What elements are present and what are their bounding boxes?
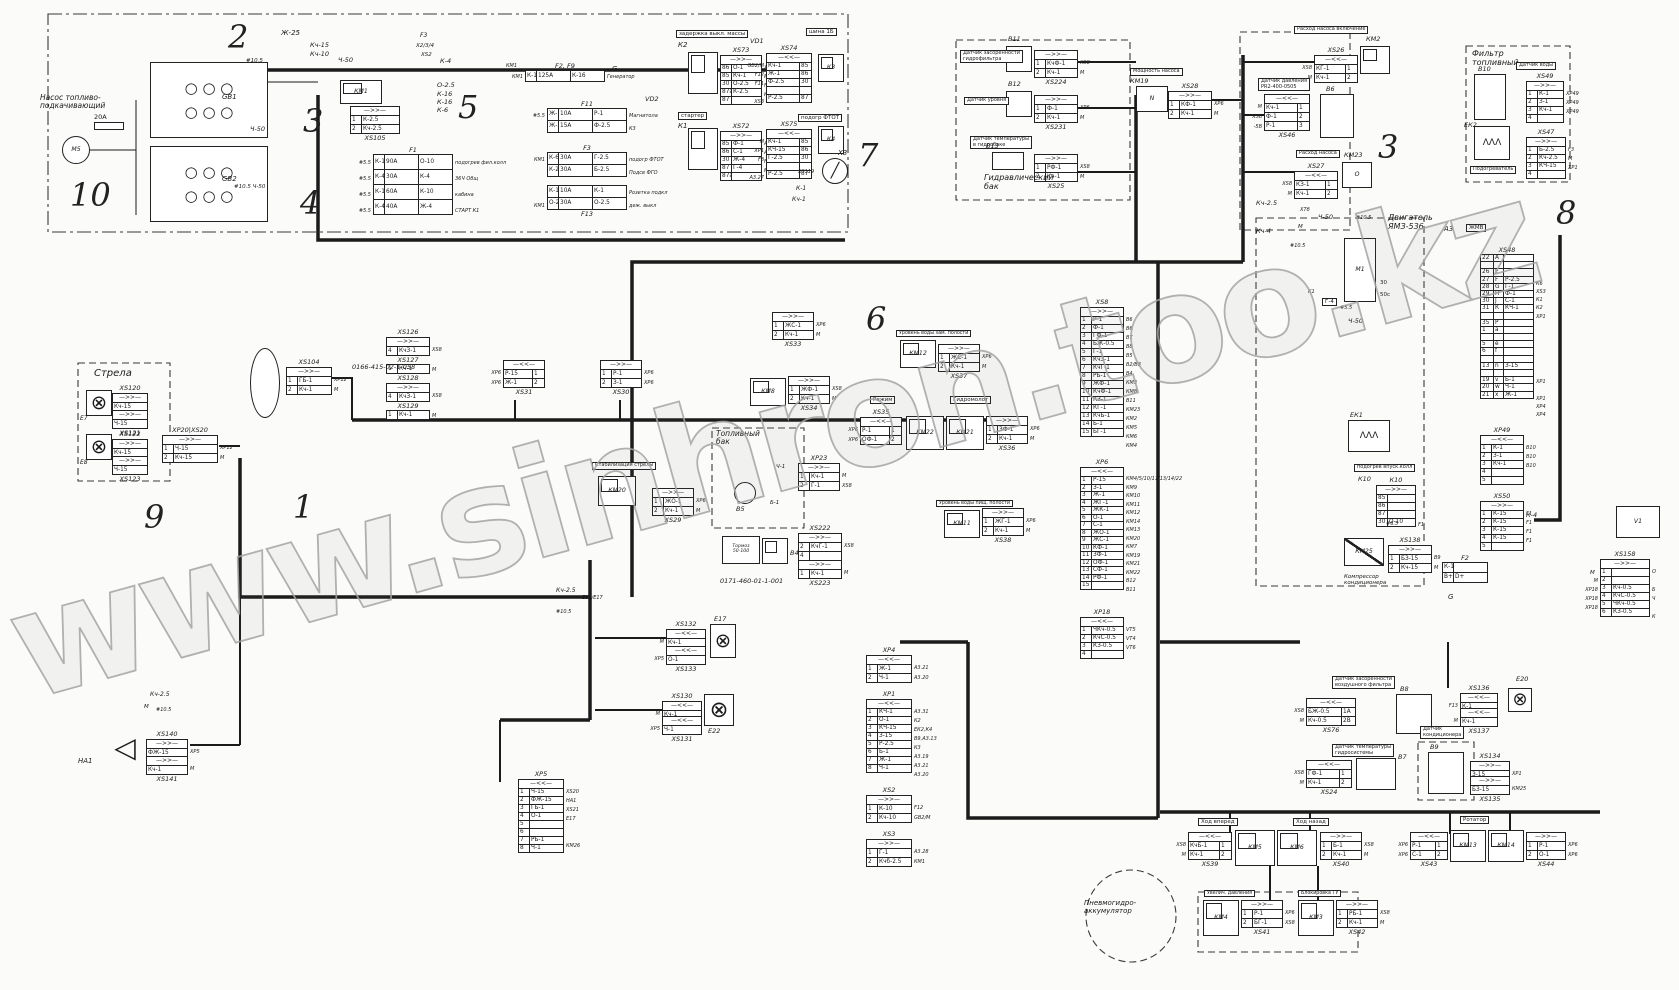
pin-cell: Б-1 — [1504, 377, 1533, 383]
wire-tag: XS21 — [566, 807, 579, 813]
pin-cell: 2 — [983, 527, 994, 535]
pin-cell: Кч-1 — [147, 766, 187, 774]
connector-XS128: XS128—>>—4КчЗ-1 — [386, 374, 430, 402]
pin-cell — [1494, 370, 1504, 376]
wire-tag: М — [982, 364, 986, 370]
pin-cell: КчФ-1 — [1046, 60, 1077, 68]
label: Стабилизация стрелы — [592, 462, 656, 470]
pin-cell: 1 — [1035, 164, 1046, 172]
pin-cell: 1 — [351, 116, 362, 124]
pin-cell: О-2.5 — [548, 198, 559, 209]
pin-cell: 12 — [1081, 405, 1092, 412]
connector-XS140: XS140—>>—ФЖ-15 — [146, 730, 188, 758]
pin-cell: 7 — [1081, 522, 1092, 529]
pin-row: 12ОФ-1 — [1080, 559, 1124, 568]
connector-XS231: —>>—1Ф-12Кч-1XS231 — [1034, 95, 1078, 132]
pin-cell: Кч-1 — [1046, 69, 1077, 77]
wire-tag: ХР6 — [1026, 518, 1036, 524]
wire-tag: КМ5 — [1126, 425, 1137, 431]
pin-row: 5 — [518, 820, 564, 829]
pin-cell: 8 — [1081, 530, 1092, 537]
pin-cell: З-1 — [1092, 485, 1123, 492]
sensor-b12 — [1006, 91, 1032, 117]
pin-row: 1Кч-1 — [798, 472, 840, 482]
pin-cell: 5 — [1081, 349, 1092, 356]
pin-cell: С-1 — [1504, 298, 1533, 304]
boom-lamp-e8: ⊗ — [86, 434, 112, 460]
pin-row: 1ЗФ-1 — [986, 425, 1028, 435]
callout-5: 5 — [458, 88, 478, 126]
wire-tag: М — [334, 387, 338, 393]
pin-row: 3КЧ-15 — [1526, 162, 1566, 171]
pin-cell: 1 — [1220, 842, 1231, 850]
wire-tag: F13 — [1449, 703, 1458, 709]
pin-cell: КЗ-0.5 — [1612, 609, 1649, 616]
pin-row: 5Г-1 — [1080, 348, 1124, 357]
pin-cell — [1612, 569, 1649, 576]
pin-cell: ГБ-1 — [298, 377, 331, 385]
wire-tag: В10 — [1526, 463, 1536, 469]
pin-cell: РБ-1 — [530, 837, 563, 844]
pin-row: 4К-15 — [1480, 534, 1524, 543]
wire-tag: ХР1 — [1512, 771, 1522, 777]
connector-name: XS35 — [860, 408, 902, 417]
pin-cell: Кч-1 — [1315, 74, 1346, 82]
wire-tag: Подсв ФГО — [629, 170, 658, 176]
pin-cell: 1 — [789, 386, 800, 394]
wire — [240, 458, 590, 597]
pin-row: К-110АК-1 — [547, 185, 627, 198]
pin-cell: 15А — [559, 121, 593, 132]
wire-tag: А3.27 — [749, 175, 764, 181]
connector-ХР5: ХР5—<<—1Ч-152ФЖ-153ГБ-14О-1567РБ-18Ч-1 — [518, 770, 564, 853]
wire-tag: #5.5 — [359, 192, 371, 198]
wire-tag: XS8 — [1380, 910, 1390, 916]
connector-name: XS128 — [386, 374, 430, 383]
label: GB1 — [222, 94, 237, 102]
label: К1 — [678, 123, 687, 131]
pin-cell: 2 — [1527, 851, 1538, 859]
label: Уровень воды пищ. полости — [936, 500, 1013, 507]
pin-row: 4 — [1526, 170, 1566, 179]
wire-tag: ХР6 — [1568, 842, 1578, 848]
pin-cell: 30 — [800, 79, 811, 86]
pin-cell: Ж-1 — [1092, 492, 1123, 499]
lamp-icon: ⊗ — [715, 631, 731, 651]
connector-name: XS46 — [1264, 131, 1310, 140]
pin-row: 1ЧКч-0.5 — [1080, 626, 1124, 635]
wire-tag: подогр ФТОТ — [629, 157, 664, 163]
pin-cell: Кч-2.5 — [1538, 155, 1565, 162]
pin-cell: 30 — [800, 155, 811, 162]
pin-row: 8Ч-1 — [866, 764, 912, 773]
wire-tag: В2/В3 — [1126, 362, 1141, 368]
lamp-e17: ⊗ — [710, 624, 736, 658]
pin-cell: Р-1 — [1411, 842, 1436, 850]
pin-row: 2Кч-1 — [938, 362, 980, 372]
pin-row: 8Ч-1 — [518, 844, 564, 853]
pin-cell: Г-4 — [732, 165, 761, 172]
connector-XS49: XS49—>>—1К-12З-13Кч-14 — [1526, 72, 1564, 123]
connector-XS40: —>>—1Б-12Кч-1XS40 — [1320, 832, 1362, 869]
pin-cell: Кч-1 — [1538, 107, 1563, 114]
connector-ХР18: ХР18—<<—1ЧКч-0.52КчС-0.53КЗ-0.54 — [1080, 608, 1124, 659]
connector-name: XS132 — [666, 620, 706, 629]
pin-row: К-1690АО-10 — [373, 154, 453, 170]
wire-tag: F12 — [755, 72, 764, 78]
label: Подогреватель — [1470, 166, 1516, 174]
sensor-b13 — [992, 152, 1024, 170]
km14: КМ14 — [1488, 830, 1524, 862]
connector-F3: F3К-630АГ-2.5К-2.530АБ-2.5 — [547, 144, 627, 177]
battery-cells: ○ ○ ○ ○ ○ ○ — [185, 160, 234, 208]
label: G — [612, 66, 617, 74]
valve-v1: V1 — [1616, 506, 1660, 538]
wire-tag: #5.5 — [359, 160, 371, 166]
callout-2: 2 — [228, 18, 248, 56]
wire-tag: В10 — [1526, 445, 1536, 451]
connector-XS122: XS122—>>—Кч-15 — [112, 430, 148, 458]
fuse-20a — [94, 122, 124, 130]
pin-row: Ф-12 — [1264, 112, 1310, 122]
pin-cell: 8 — [519, 845, 530, 852]
pin-cell: 87 — [800, 95, 811, 102]
component-label: КМ21 — [956, 430, 974, 437]
wire-tag: М — [1454, 718, 1458, 724]
pin-row: 4КчЗ-1 — [386, 346, 430, 356]
lamp-icon: ⊗ — [91, 437, 107, 457]
pin-row: 2КчС-0.5 — [1080, 634, 1124, 643]
pin-row: 2Кч-2.5 — [1526, 154, 1566, 163]
pin-cell: Б-1 — [878, 749, 911, 756]
pin-cell: Р-2.5 — [878, 741, 911, 748]
pin-row: 1БЗ-15 — [1388, 554, 1432, 564]
pin-cell: 2 — [1220, 851, 1231, 859]
pin-row: 15 — [1080, 581, 1124, 590]
component-label: КМ12 — [909, 351, 927, 358]
pin-cell: 7 — [1081, 365, 1092, 372]
pin-cell: 86 — [721, 65, 732, 72]
pin-cell: 2 — [939, 363, 950, 371]
label: В10 — [1478, 66, 1491, 73]
pin-row — [1480, 333, 1534, 341]
pin-cell: К — [1494, 305, 1504, 311]
km6: КМ6 — [1277, 830, 1317, 866]
pin-cell: БГ-1 — [1253, 919, 1282, 927]
pin-cell: 2 — [799, 482, 810, 490]
connector-name: XS123 — [112, 475, 148, 484]
label: КМ19 — [1130, 78, 1149, 85]
wire-tag: М — [1364, 852, 1368, 858]
pin-cell: О-1 — [530, 813, 563, 820]
pin-row: 3Кч-1 — [1480, 460, 1524, 469]
pin-cell: 1 — [1481, 511, 1492, 518]
wire-tag: ХР6 — [816, 322, 826, 328]
wire-tag: ХР6 — [848, 427, 858, 433]
connector-name: XS105 — [350, 134, 400, 143]
pin-cell: Г-2.5 — [593, 153, 626, 164]
pin-row: 5 — [1480, 542, 1524, 551]
pin-row: 87Г-4 — [720, 164, 762, 173]
fuel-pump-motor: М5 — [62, 136, 90, 164]
pin-cell: 8 — [1081, 373, 1092, 380]
connector-XS132: XS132—<<—Кч-1 — [666, 620, 706, 648]
pin-cell: КчБ-1 — [1189, 842, 1220, 850]
pin-cell: Кч-1 — [1265, 104, 1298, 112]
wire-tag: ХР6 — [644, 370, 654, 376]
pin-row: Р-13 — [1264, 121, 1310, 131]
pin-cell — [1494, 334, 1504, 340]
lamp-icon: ⊗ — [91, 393, 107, 413]
pin-cell: 35 — [1481, 320, 1494, 326]
connector-name: ХР4 — [866, 646, 912, 655]
pin-cell: 1 — [799, 570, 810, 578]
connector-XS24: —<<—ГФ-11Кч-12XS24 — [1306, 760, 1352, 797]
pin-cell: ЖС-1 — [1092, 537, 1123, 544]
wire-tag: К2 — [1536, 305, 1543, 311]
pin-cell: 85 — [800, 63, 811, 70]
connector-name: XS49 — [1526, 72, 1564, 81]
label: #10.5 — [1356, 216, 1371, 222]
pin-row: 30Ж-4 — [720, 156, 762, 165]
pin-cell: 30А — [559, 165, 593, 176]
pin-row: Ж-110АР-1 — [547, 108, 627, 121]
pin-row: 2Кчб-2.5 — [866, 857, 912, 867]
connector-XS31: —<<—Р-151Ж-12XS31 — [503, 360, 545, 397]
pin-cell: 15 — [1081, 582, 1092, 589]
km5: КМ5 — [1235, 830, 1275, 866]
connector-XS129: XS1291Кч-1 — [386, 402, 430, 420]
pin-cell: 3 — [1081, 643, 1092, 650]
wire-tag: ХР1 — [1568, 165, 1578, 171]
wire-tag: ХР6 — [1285, 910, 1295, 916]
pin-cell: 1 — [519, 789, 530, 796]
component-label: КМ20 — [608, 488, 626, 495]
pin-cell: КчЗ-1 — [398, 347, 429, 355]
wire-tag: М — [1214, 111, 1218, 117]
pin-row: 1ЖГ-1 — [982, 517, 1024, 527]
connector-name: XS44 — [1526, 860, 1566, 869]
pin-row: 4КчС-0.5 — [1600, 592, 1650, 601]
wire-tag: ХР1 — [1536, 314, 1546, 320]
pin-row — [1480, 261, 1534, 269]
pin-cell: К-10 — [878, 805, 911, 813]
connector-ХР20|ХS20: ХР20|ХS20—>>—1Ч-152Кч-15 — [162, 426, 218, 463]
pin-row: К-630АГ-2.5 — [547, 152, 627, 165]
pin-row: ОФ-12 — [860, 435, 902, 445]
component-label: КМ1 — [354, 89, 368, 96]
wire-tag: М — [696, 508, 700, 514]
label: Г-4 — [1322, 298, 1337, 306]
connector-F13: К-110АК-1О-2.530АО-2.5F13 — [547, 186, 627, 219]
callout-7: 7 — [858, 136, 878, 174]
wire-tag: В4 — [1126, 371, 1133, 377]
pin-row: 22А — [1480, 254, 1534, 262]
pin-cell: Г-1 — [1092, 349, 1123, 356]
pin-row: 1Кч-1 — [798, 569, 842, 579]
callout-10: 10 — [70, 176, 111, 214]
connector-XS27: XS27—<<—КЗ-11Кч-12 — [1294, 162, 1338, 199]
pin-cell: 1 — [799, 473, 810, 481]
pin-cell: 6 — [1601, 609, 1612, 616]
label: М — [1298, 224, 1303, 230]
wire-tag: XS8 — [1302, 65, 1312, 71]
pin-cell: ОФ-1 — [1092, 560, 1123, 567]
wire-tag: К — [1652, 614, 1656, 620]
pin-cell — [1092, 651, 1123, 658]
pin-cell: 87а — [721, 173, 732, 180]
pin-cell: К-16 — [571, 71, 604, 81]
component-label: Тормоз 50-100 — [732, 545, 749, 555]
pin-cell: 2 — [789, 395, 800, 403]
wire-tag: К2 — [914, 718, 921, 724]
heater-ek1: ΛΛΛ — [1348, 420, 1390, 452]
pin-cell: 1 — [1346, 65, 1357, 73]
pin-cell: 86 — [721, 149, 732, 156]
pin-cell: 90А — [385, 155, 419, 169]
pin-cell: 5 — [519, 821, 530, 828]
connector-F11: F11Ж-110АР-1Ж-2.515АФ-2.5 — [547, 100, 627, 133]
pin-cell — [1481, 370, 1494, 376]
pin-row: 1ЖС-1 — [772, 321, 814, 331]
pin-cell: Кч-1 — [810, 570, 841, 578]
pin-cell: 2 — [1242, 919, 1253, 927]
wire-tag: ХР1 — [754, 148, 764, 154]
wire-tag: М — [842, 473, 846, 479]
pin-cell: 1 — [1337, 910, 1348, 918]
wire-tag: М — [656, 711, 660, 717]
callout-9: 9 — [144, 498, 164, 536]
pin-cell: ЧКч-0.5 — [1612, 601, 1649, 608]
pin-cell — [1388, 503, 1415, 510]
pin-cell: Б-1 — [1092, 421, 1123, 428]
label: В7 — [1398, 754, 1407, 761]
pin-row: 2О-1 — [866, 716, 912, 725]
pin-cell: КЗ-1 — [1092, 397, 1123, 404]
pin-cell: 4 — [519, 813, 530, 820]
pin-cell — [1492, 543, 1523, 550]
connector-name: XS8 — [1080, 298, 1124, 307]
pin-cell: 3 — [1481, 527, 1492, 534]
label: Датчик уровня — [964, 97, 1009, 105]
pin-cell: Р — [1494, 320, 1504, 326]
connector-XS137: —<<—Кч-1XS137 — [1460, 708, 1498, 736]
pin-row: 1Р-15 — [1080, 476, 1124, 485]
pin-cell: 4 — [1601, 593, 1612, 600]
label: Расход насоса включение — [1294, 26, 1368, 34]
connector-name: ХР20|ХS20 — [162, 426, 218, 435]
pin-cell: 2 — [1337, 919, 1348, 927]
pin-cell: К-4 — [374, 200, 385, 214]
pin-cell: 1 — [1481, 327, 1494, 333]
wire-tag: #5.5 — [533, 113, 545, 119]
pin-cell: 1 — [1081, 477, 1092, 484]
pin-cell: К-1 — [548, 186, 559, 197]
pin-row: 2Кч-1 — [772, 330, 814, 340]
connector-name: XS42 — [1336, 928, 1378, 937]
pin-row: 14РФ-1 — [1080, 574, 1124, 583]
pin-cell: 5 — [867, 741, 878, 748]
pin-cell: 1 — [867, 709, 878, 716]
pin-cell: Кч-0.5 — [1612, 585, 1649, 592]
pin-cell: 11 — [1081, 397, 1092, 404]
pin-row: 2К-15 — [1480, 518, 1524, 527]
pin-cell: Р-2.5 — [1504, 277, 1533, 283]
pin-cell: Ф-1 — [1265, 113, 1298, 121]
pin-row — [1480, 312, 1534, 320]
wire-tag: М — [1080, 70, 1084, 76]
pin-cell: 4 — [387, 393, 398, 401]
wire-tag: ХР6 — [1030, 426, 1040, 432]
connector-XS36: —>>—1ЗФ-12Кч-1XS36 — [986, 416, 1028, 453]
pin-row: 2Ч-1 — [866, 673, 912, 683]
pin-cell: 1 — [1389, 555, 1400, 563]
pin-cell: 87 — [721, 97, 732, 104]
connector-XS2: XS2—>>—1К-102Кч-10 — [866, 786, 912, 823]
pin-row: 3К-15 — [1480, 526, 1524, 535]
connector-ХР1: ХР1—<<—1КЧ-12О-13КЧ-154З-155Р-2.56Б-17Ж-… — [866, 690, 912, 773]
connector-XS37: —>>—1ЖС-12Кч-1XS37 — [938, 344, 980, 381]
connector-name: ХР18 — [1080, 608, 1124, 617]
pin-cell — [1504, 255, 1533, 261]
connector-name: XS2 — [866, 786, 912, 795]
pin-row: 87аК-2.5 — [720, 88, 762, 97]
wire-tag: ХР6 — [1214, 101, 1224, 107]
pin-row: 7КчГ-1 — [1080, 364, 1124, 373]
wire-tag: GB2/M — [748, 63, 764, 69]
km3: КМ3 — [1298, 900, 1334, 936]
wire-tag: М — [1080, 115, 1084, 121]
pin-row: 86 — [1376, 502, 1416, 511]
pin-cell: К-6 — [548, 153, 559, 164]
pin-cell: Р-2.5 — [767, 95, 800, 102]
pin-row: Ф-2.530 — [766, 78, 812, 87]
pin-cell: 86 — [1377, 503, 1388, 510]
pin-row: Кч-0.52В — [1306, 716, 1356, 726]
callout-8: 8 — [1556, 194, 1576, 232]
pin-cell: РБ-1 — [1348, 910, 1377, 918]
label: К-4 — [440, 58, 451, 65]
connector-name: XS26 — [1314, 46, 1358, 55]
pin-row: 3Кч-0.5 — [1600, 584, 1650, 593]
pin-row: 3Ж-1 — [1080, 491, 1124, 500]
pin-cell: К-15 — [1492, 519, 1523, 526]
pin-cell: О-10 — [419, 155, 452, 169]
pin-cell — [767, 87, 800, 94]
wire-tag: В12 — [1126, 578, 1136, 584]
pin-cell: 2 — [533, 379, 544, 387]
pin-cell — [1504, 262, 1533, 268]
pin-cell: 2 — [867, 858, 878, 866]
connector-name: ХР49 — [1480, 426, 1524, 435]
pin-cell: Р-15 — [1092, 477, 1123, 484]
pin-row: КЗ-11 — [1294, 180, 1338, 190]
pin-row: 2Кч-1 — [652, 506, 694, 516]
pin-cell: Кч-1 — [1295, 190, 1326, 198]
wire-tag: ХР6 — [644, 380, 654, 386]
pin-row: 2З-1 — [1480, 452, 1524, 461]
pin-cell: 1 — [773, 322, 784, 330]
pin-cell: 6 — [519, 829, 530, 836]
wire-tag: М — [1380, 920, 1384, 926]
pin-row: 6КчЗ-1 — [1080, 356, 1124, 365]
wire-tag: Е17 — [566, 816, 576, 822]
connector-ХР23: ХР23—>>—1Кч-12Г-1 — [798, 454, 840, 491]
fuel-level-sensor-b5 — [734, 482, 756, 504]
pin-row: 2Г-1 — [798, 481, 840, 491]
connector-XS48: XS4822А26Е27FР-2.528GГ-129НФ-130JС-131КК… — [1480, 246, 1534, 399]
component-label: КМ3 — [1309, 915, 1323, 922]
